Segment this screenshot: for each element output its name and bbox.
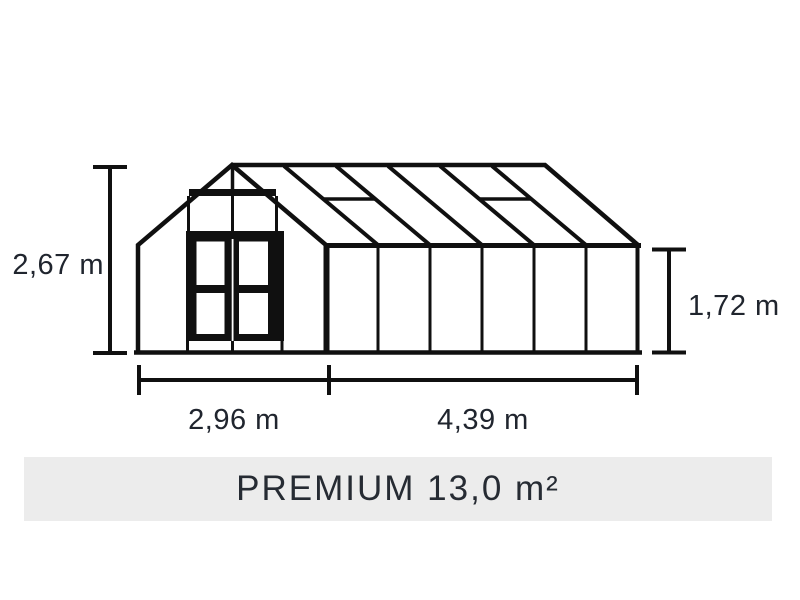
corner-post	[324, 245, 330, 353]
door-leaf-split	[232, 239, 234, 341]
front-height-label: 2,67 m	[12, 249, 104, 281]
door-pane-upper-right	[239, 242, 268, 286]
side-length-label: 4,39 m	[437, 404, 529, 436]
roof-glazing-bar	[284, 166, 378, 245]
dimension-bottom: 2,96 m 4,39 m	[139, 365, 637, 436]
door-header-bar	[186, 231, 284, 239]
side-height-label: 1,72 m	[688, 290, 780, 322]
roof	[232, 165, 638, 245]
door-pane-lower-right	[239, 293, 268, 334]
door-right-frame	[277, 239, 284, 341]
product-title-banner: PREMIUM 13,0 m²	[24, 457, 772, 521]
dimension-front-height: 2,67 m	[12, 167, 127, 353]
side-wall-eave-bar	[324, 243, 641, 248]
greenhouse-dimension-figure: 2,67 m 1,72 m 2,96 m 4,39 m PREMIUM 13,0…	[0, 0, 800, 600]
door-pane-lower-left	[197, 293, 225, 334]
front-width-label: 2,96 m	[188, 404, 280, 436]
roof-glazing-bar	[336, 166, 430, 245]
door-pane-upper-left	[197, 242, 225, 286]
roof-glazing-bar	[440, 166, 534, 245]
door-left-frame	[186, 239, 193, 341]
dimension-side-height: 1,72 m	[652, 250, 780, 353]
double-door	[186, 231, 284, 352]
roof-glazing-bar	[388, 166, 482, 245]
door-transom-bar	[189, 189, 276, 196]
roof-glazing-bar	[492, 166, 586, 245]
product-title: PREMIUM 13,0 m²	[236, 469, 560, 509]
side-wall	[324, 243, 642, 353]
